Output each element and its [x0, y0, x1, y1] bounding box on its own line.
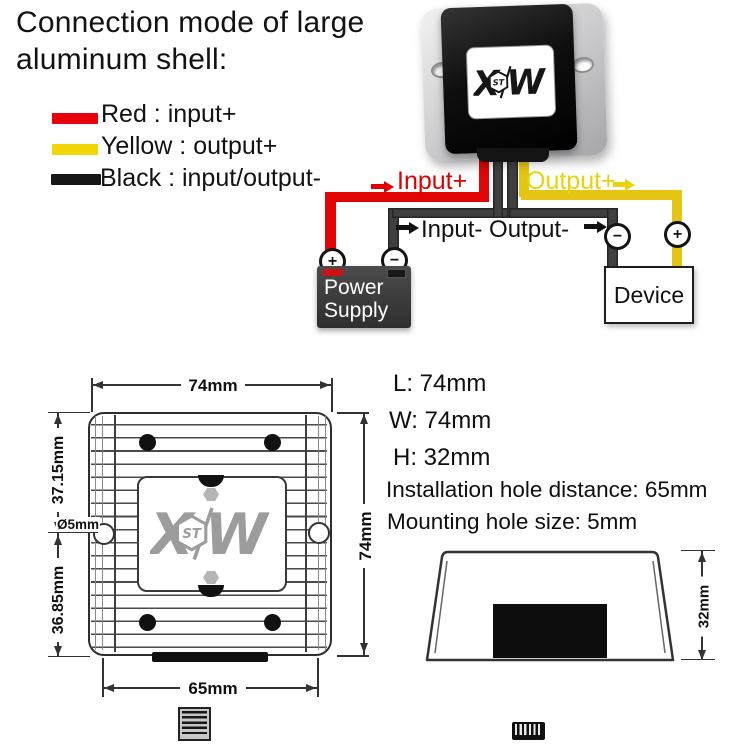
mini-top-view-stripes [182, 711, 207, 737]
xw-logo-gray: X W ST [150, 501, 274, 567]
screw-dot [139, 614, 156, 631]
inout-minus-label: Input- Output- [421, 216, 569, 244]
dim-arrow [698, 650, 706, 660]
dim-arrow [104, 684, 114, 692]
screw-dot [264, 434, 281, 451]
legend-swatch-red [52, 113, 98, 124]
power-supply-label-line2: Supply [324, 300, 388, 322]
dim-arrow [93, 381, 103, 389]
power-supply-black-terminal [387, 269, 406, 278]
legend-swatch-black [51, 174, 101, 185]
mini-side-view-icon [512, 722, 545, 740]
mini-side-view-stripes [515, 724, 542, 735]
device-label: Device [606, 268, 692, 322]
connector-bar [152, 652, 268, 662]
dim-arrow [54, 646, 62, 656]
dim-hole-distance-label: 65mm [180, 679, 246, 699]
input-plus-arrow-icon [371, 184, 385, 189]
wire-gland [477, 148, 549, 162]
brand-label: X W ST [466, 44, 556, 119]
ext-line [48, 656, 90, 657]
dim-arrow [360, 643, 368, 653]
device-minus-terminal: − [604, 223, 631, 250]
logo-st: ST [182, 527, 202, 542]
dim-arrow [306, 684, 316, 692]
power-supply-label-line1: Power [324, 277, 384, 299]
side-view-drawing [395, 540, 685, 666]
power-supply-box: Power Supply [317, 266, 411, 328]
minus-right-arrow-icon [584, 224, 598, 229]
ext-line [681, 550, 715, 551]
ext-line [48, 412, 90, 413]
side-view-connector-block [493, 604, 607, 658]
mini-top-view-icon [178, 707, 211, 741]
output-plus-label: Output+ [526, 167, 616, 196]
logo-w: W [506, 62, 547, 103]
input-plus-label: Input+ [397, 167, 467, 196]
page-title-line1: Connection mode of large [16, 6, 364, 40]
device-box: Device [604, 266, 694, 324]
output-plus-arrow-icon [613, 182, 626, 187]
dim-arrow [320, 381, 330, 389]
page-title-line2: aluminum shell: [16, 43, 227, 77]
dim-right-height-label: 74mm [356, 504, 376, 568]
xw-logo: X W ST [472, 61, 549, 104]
spec-height: H: 32mm [393, 444, 490, 472]
dim-arrow [698, 552, 706, 562]
dim-top-width-label: 74mm [181, 376, 245, 396]
converter-photo: X W ST [415, 0, 655, 180]
dim-hole-diameter-label: Ø5mm [56, 517, 100, 532]
ext-line [317, 658, 319, 697]
fin-rail [305, 415, 307, 652]
legend-swatch-yellow [52, 144, 98, 155]
connection-diagram-page: Connection mode of large aluminum shell:… [0, 0, 750, 750]
spec-width: W: 74mm [389, 407, 491, 435]
dim-lower-offset-label: 36.85mm [50, 558, 68, 642]
mounting-hole-right [308, 522, 330, 544]
dim-side-height-label: 32mm [696, 577, 713, 637]
minus-left-arrow-icon [396, 225, 410, 230]
spec-hole-distance: Installation hole distance: 65mm [386, 477, 707, 503]
dim-upper-offset-label: 37.15mm [50, 428, 68, 512]
logo-st: ST [493, 77, 506, 87]
dim-arrow [360, 414, 368, 424]
ext-line [48, 532, 98, 533]
logo-w: W [205, 502, 270, 566]
spec-length: L: 74mm [393, 370, 486, 398]
screw-dot [139, 434, 156, 451]
spec-hole-size: Mounting hole size: 5mm [387, 509, 637, 535]
dim-arrow [54, 535, 62, 545]
legend-label-yellow: Yellow : output+ [101, 132, 277, 161]
screw-dot [264, 614, 281, 631]
legend-label-black: Black : input/output- [100, 164, 321, 193]
device-plus-terminal: + [664, 221, 691, 248]
legend-label-red: Red : input+ [101, 100, 237, 129]
dim-arrow [54, 414, 62, 424]
power-supply-red-terminal [323, 269, 343, 276]
